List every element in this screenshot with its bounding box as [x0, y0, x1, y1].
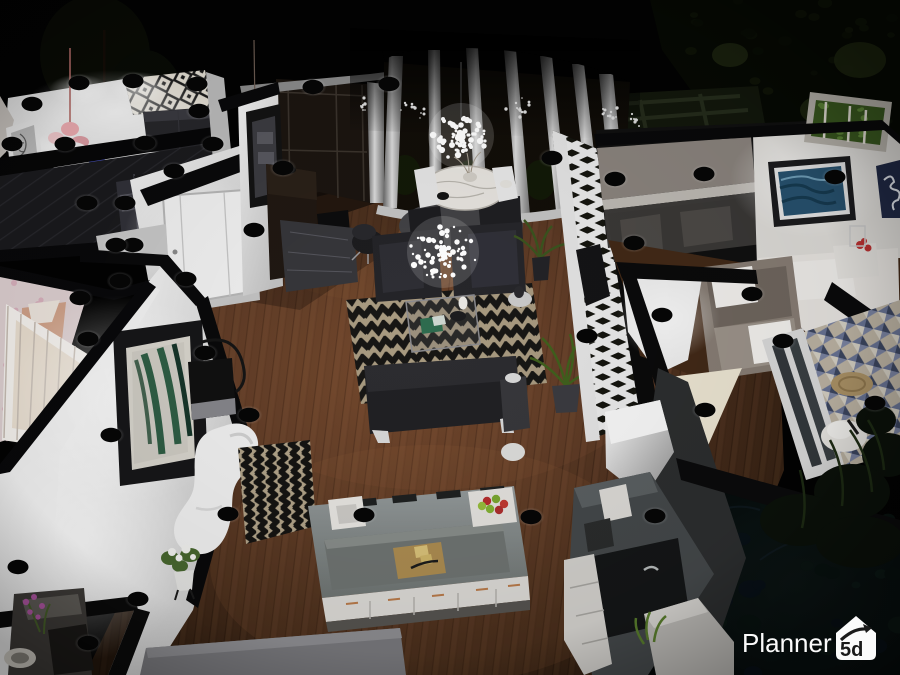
svg-text:5d: 5d — [840, 639, 863, 661]
svg-text:Planner: Planner — [742, 628, 832, 658]
